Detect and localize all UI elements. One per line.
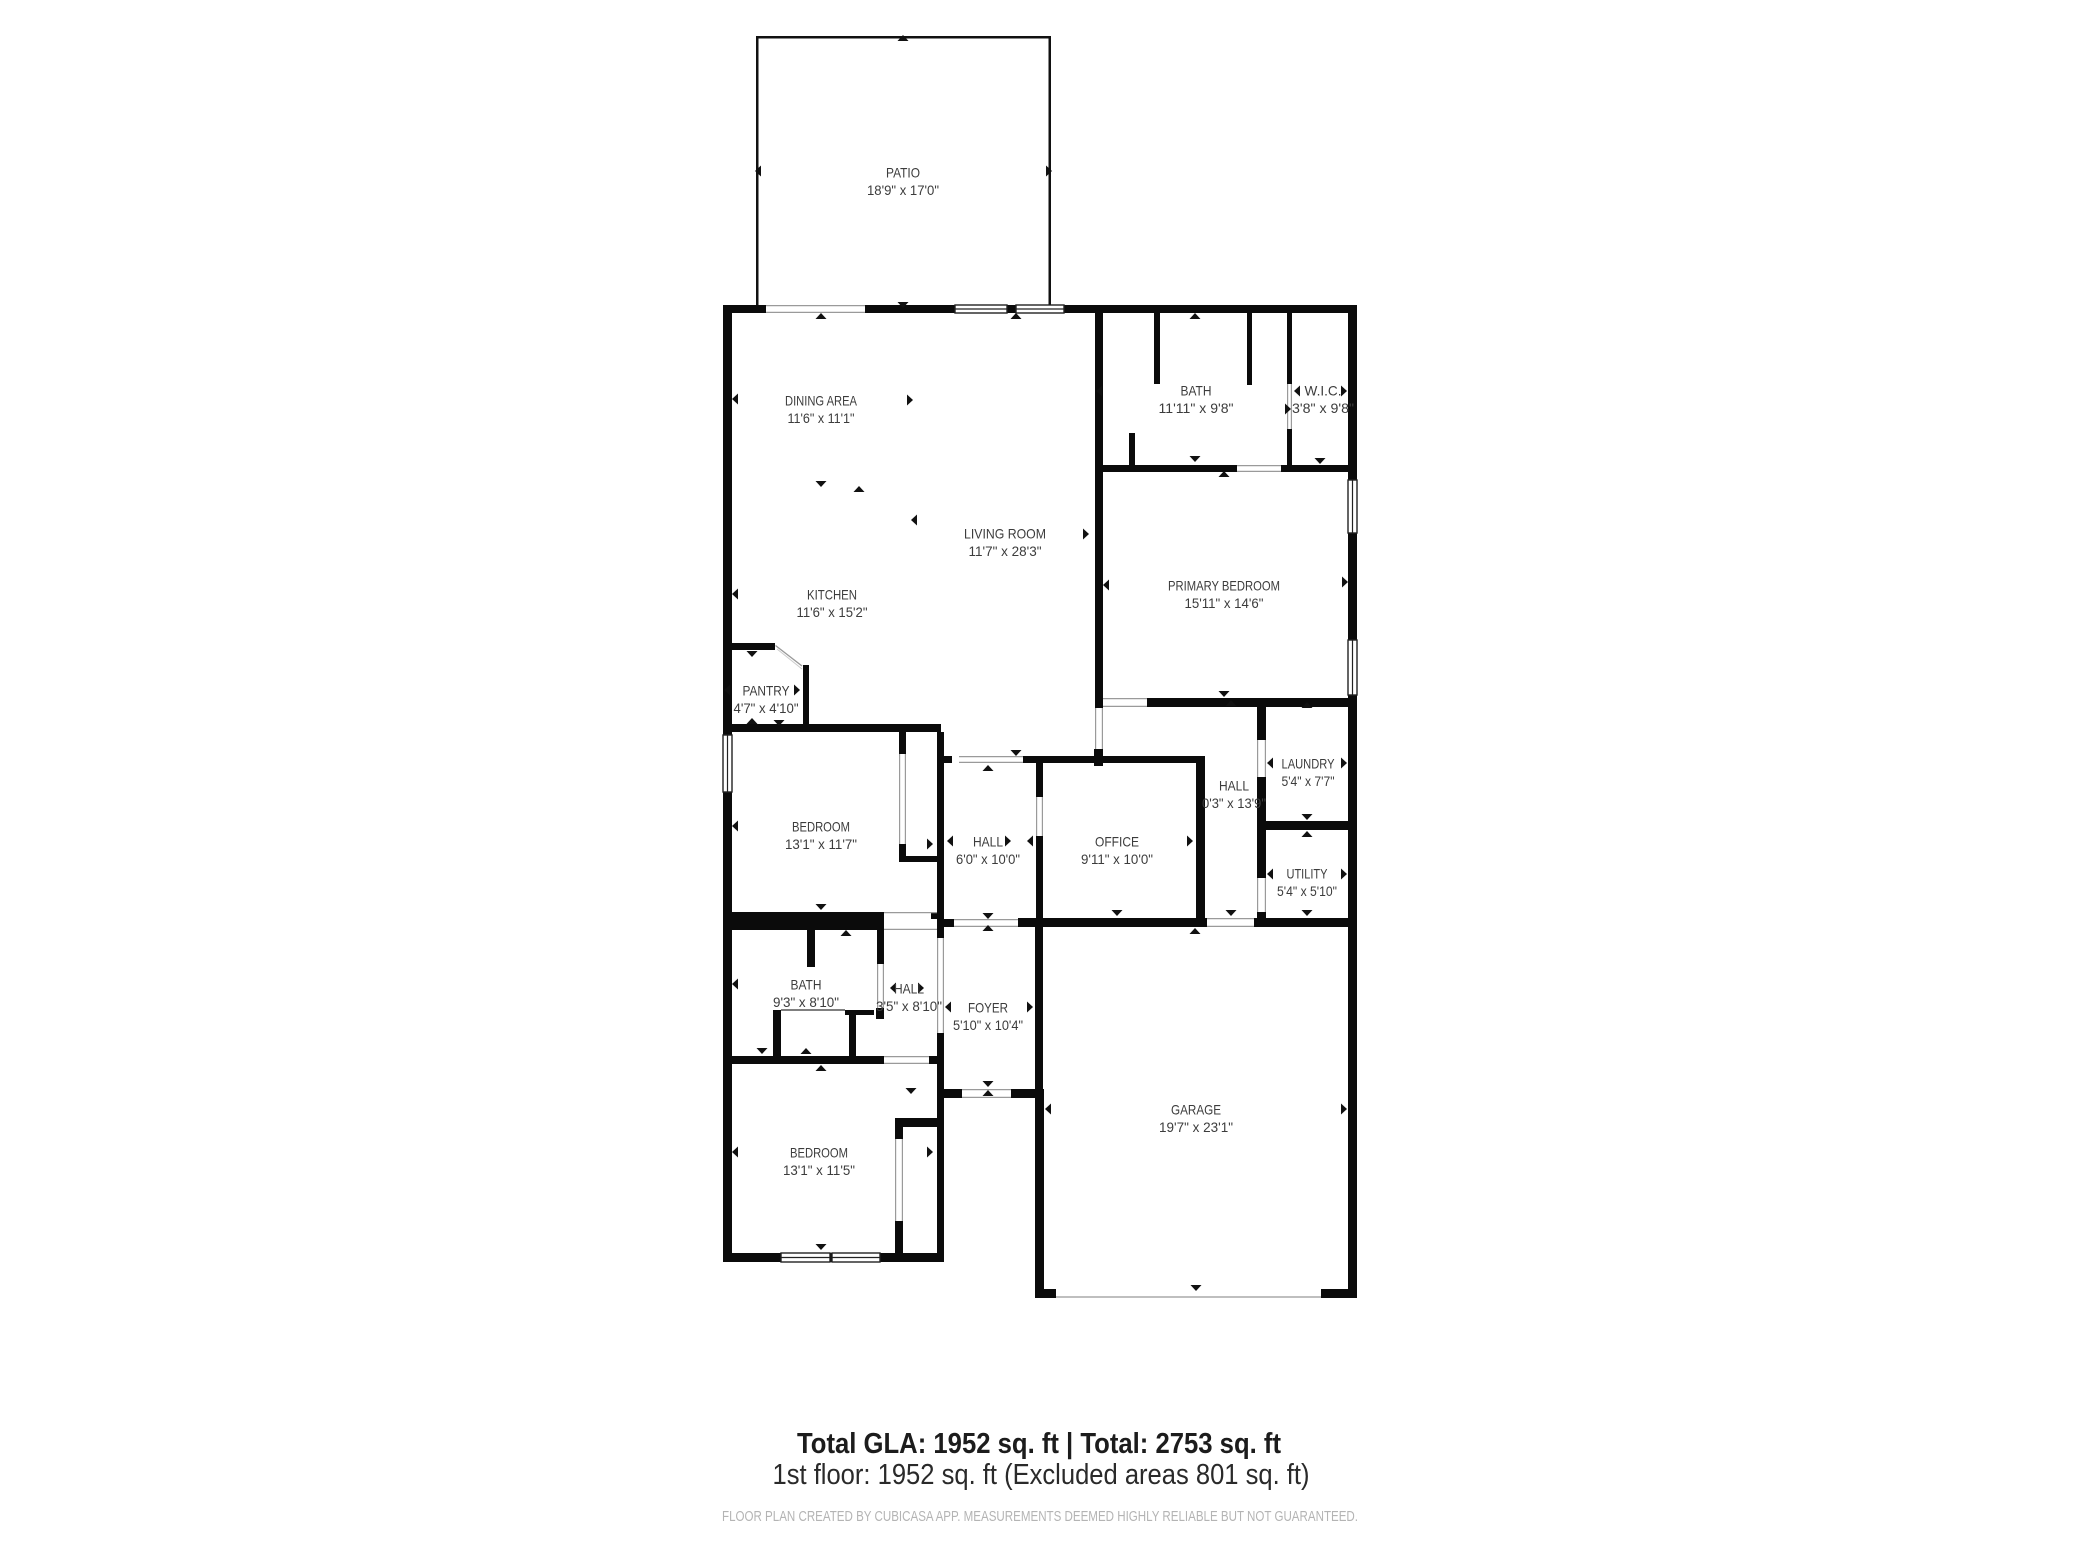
svg-text:19'7" x 23'1": 19'7" x 23'1" [1159, 1119, 1233, 1135]
svg-text:4'7" x 4'10": 4'7" x 4'10" [734, 700, 799, 716]
svg-text:BEDROOM: BEDROOM [790, 1145, 848, 1161]
svg-text:11'6" x 11'1": 11'6" x 11'1" [788, 410, 855, 426]
svg-text:3'8" x 9'8": 3'8" x 9'8" [1292, 400, 1354, 416]
svg-text:11'11" x 9'8": 11'11" x 9'8" [1159, 400, 1234, 416]
svg-text:OFFICE: OFFICE [1095, 834, 1139, 850]
svg-text:13'1" x 11'5": 13'1" x 11'5" [783, 1162, 855, 1178]
svg-text:HALL: HALL [973, 834, 1003, 850]
svg-text:Total GLA: 1952 sq. ft | Total: Total GLA: 1952 sq. ft | Total: 2753 sq.… [797, 1428, 1281, 1460]
svg-text:KITCHEN: KITCHEN [807, 587, 857, 603]
svg-text:9'11" x 10'0": 9'11" x 10'0" [1081, 851, 1153, 867]
svg-text:PANTRY: PANTRY [743, 683, 791, 699]
svg-text:3'5" x 8'10": 3'5" x 8'10" [876, 998, 942, 1014]
svg-text:11'6" x 15'2": 11'6" x 15'2" [797, 604, 868, 620]
svg-text:PRIMARY BEDROOM: PRIMARY BEDROOM [1168, 578, 1280, 594]
svg-text:9'3" x 8'10": 9'3" x 8'10" [773, 994, 839, 1010]
svg-text:18'9" x 17'0": 18'9" x 17'0" [867, 182, 939, 198]
svg-text:1st floor: 1952 sq. ft (Exclud: 1st floor: 1952 sq. ft (Excluded areas 8… [773, 1459, 1310, 1491]
svg-text:15'11" x 14'6": 15'11" x 14'6" [1185, 595, 1264, 611]
svg-text:11'7" x 28'3": 11'7" x 28'3" [969, 543, 1042, 559]
svg-text:LIVING ROOM: LIVING ROOM [964, 526, 1046, 542]
svg-text:HALL: HALL [894, 981, 924, 997]
svg-text:FLOOR PLAN CREATED BY CUBICASA: FLOOR PLAN CREATED BY CUBICASA APP. MEAS… [722, 1508, 1358, 1525]
svg-text:GARAGE: GARAGE [1171, 1102, 1221, 1118]
svg-text:PATIO: PATIO [886, 165, 920, 181]
svg-text:FOYER: FOYER [968, 1000, 1008, 1016]
svg-text:BATH: BATH [791, 977, 822, 993]
svg-text:5'10" x 10'4": 5'10" x 10'4" [953, 1017, 1023, 1033]
svg-text:UTILITY: UTILITY [1287, 866, 1329, 882]
svg-text:6'0" x 10'0": 6'0" x 10'0" [956, 851, 1020, 867]
svg-text:13'1" x 11'7": 13'1" x 11'7" [785, 836, 857, 852]
svg-text:HALL: HALL [1219, 778, 1249, 794]
svg-text:5'4" x 7'7": 5'4" x 7'7" [1282, 773, 1335, 789]
svg-text:5'4" x 5'10": 5'4" x 5'10" [1277, 883, 1337, 899]
svg-text:BATH: BATH [1181, 383, 1212, 399]
svg-text:LAUNDRY: LAUNDRY [1282, 756, 1336, 772]
svg-text:0'3" x 13'9": 0'3" x 13'9" [1202, 795, 1266, 811]
svg-text:DINING AREA: DINING AREA [785, 393, 858, 409]
svg-text:W.I.C.: W.I.C. [1305, 383, 1342, 399]
svg-text:BEDROOM: BEDROOM [792, 819, 850, 835]
